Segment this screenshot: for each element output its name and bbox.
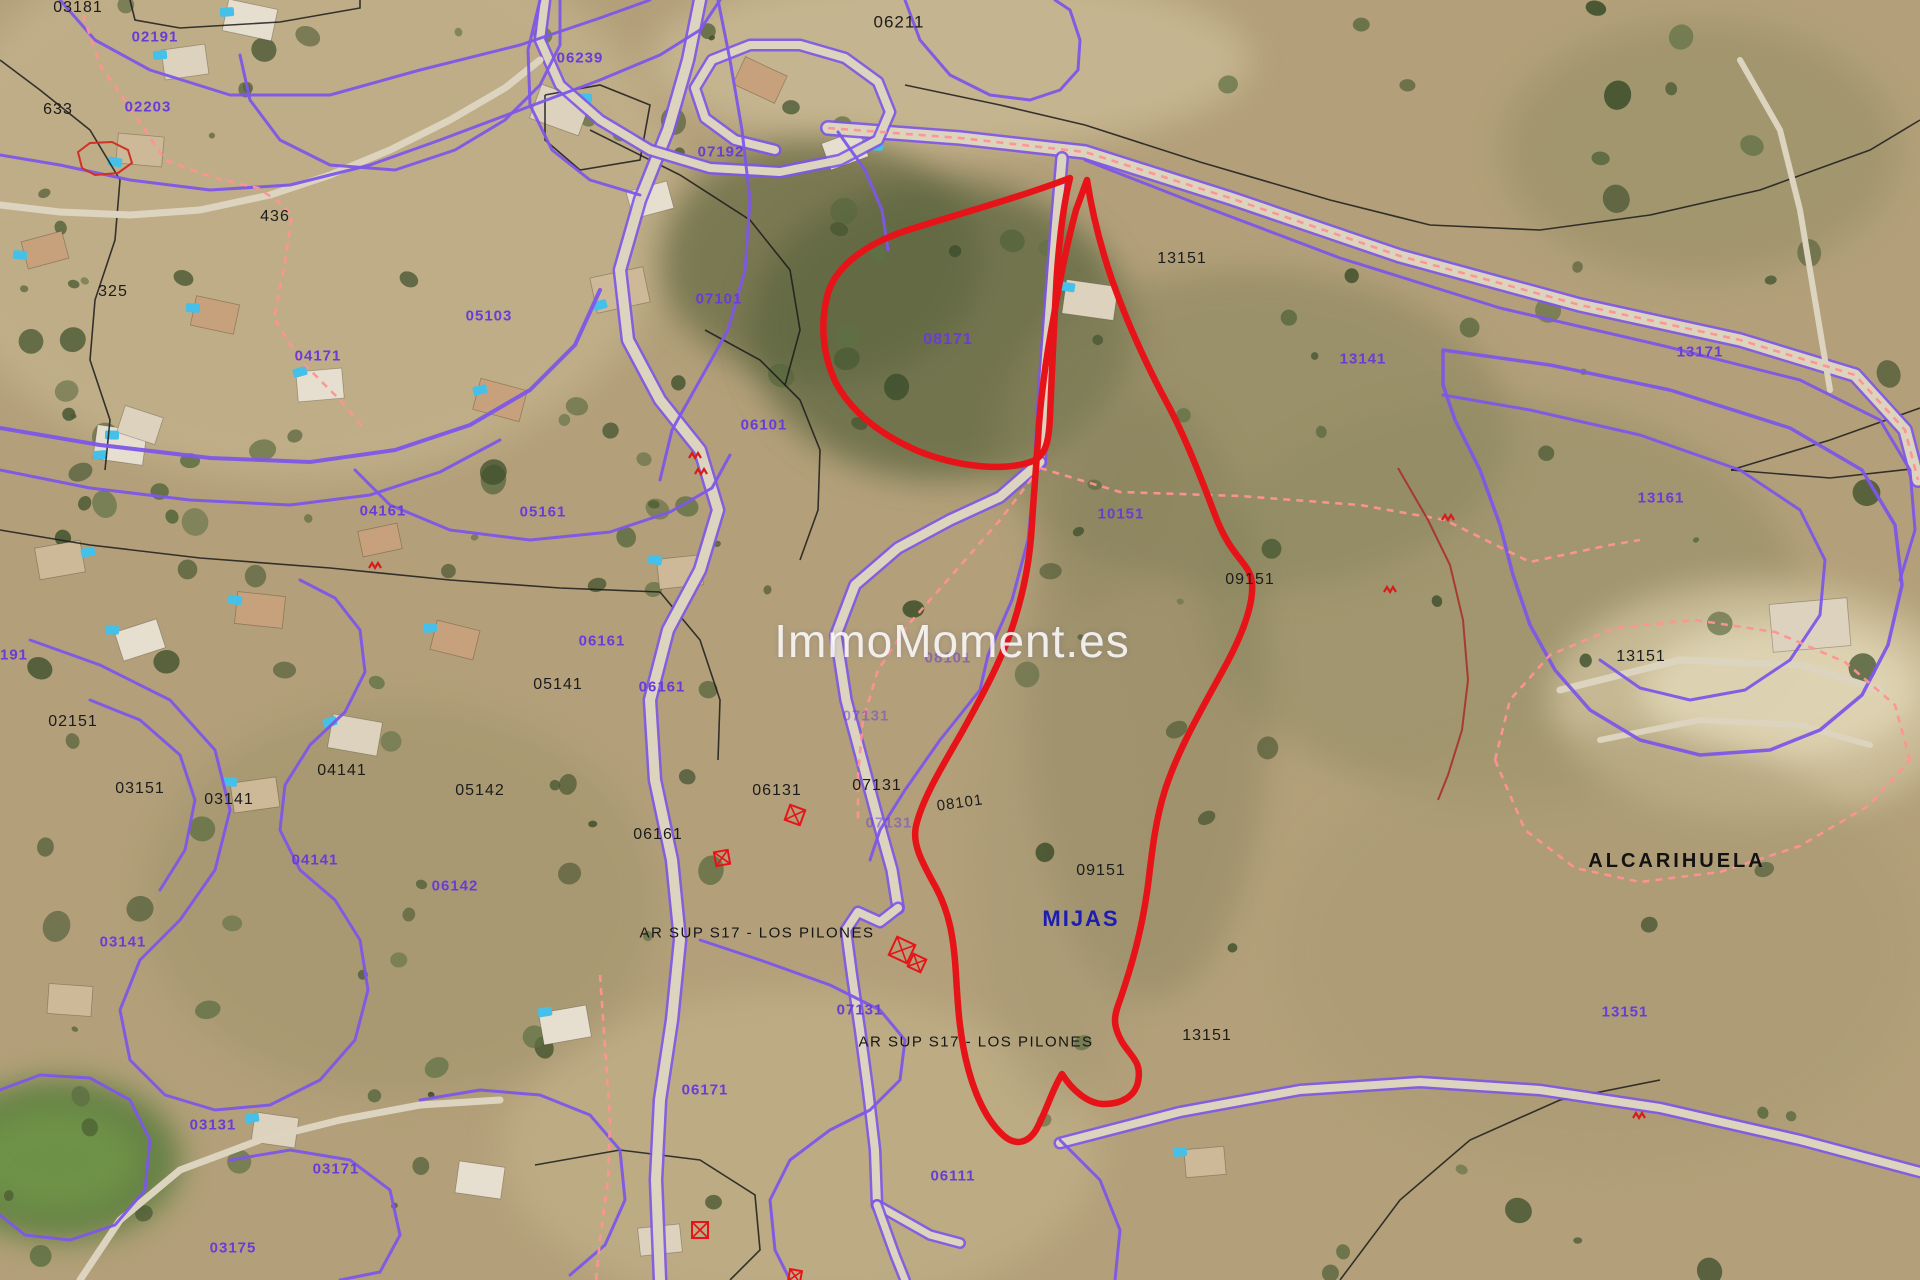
- map-canvas: [0, 0, 1920, 1280]
- aerial-cadastral-map[interactable]: 0318163343632506211131510215103151031410…: [0, 0, 1920, 1280]
